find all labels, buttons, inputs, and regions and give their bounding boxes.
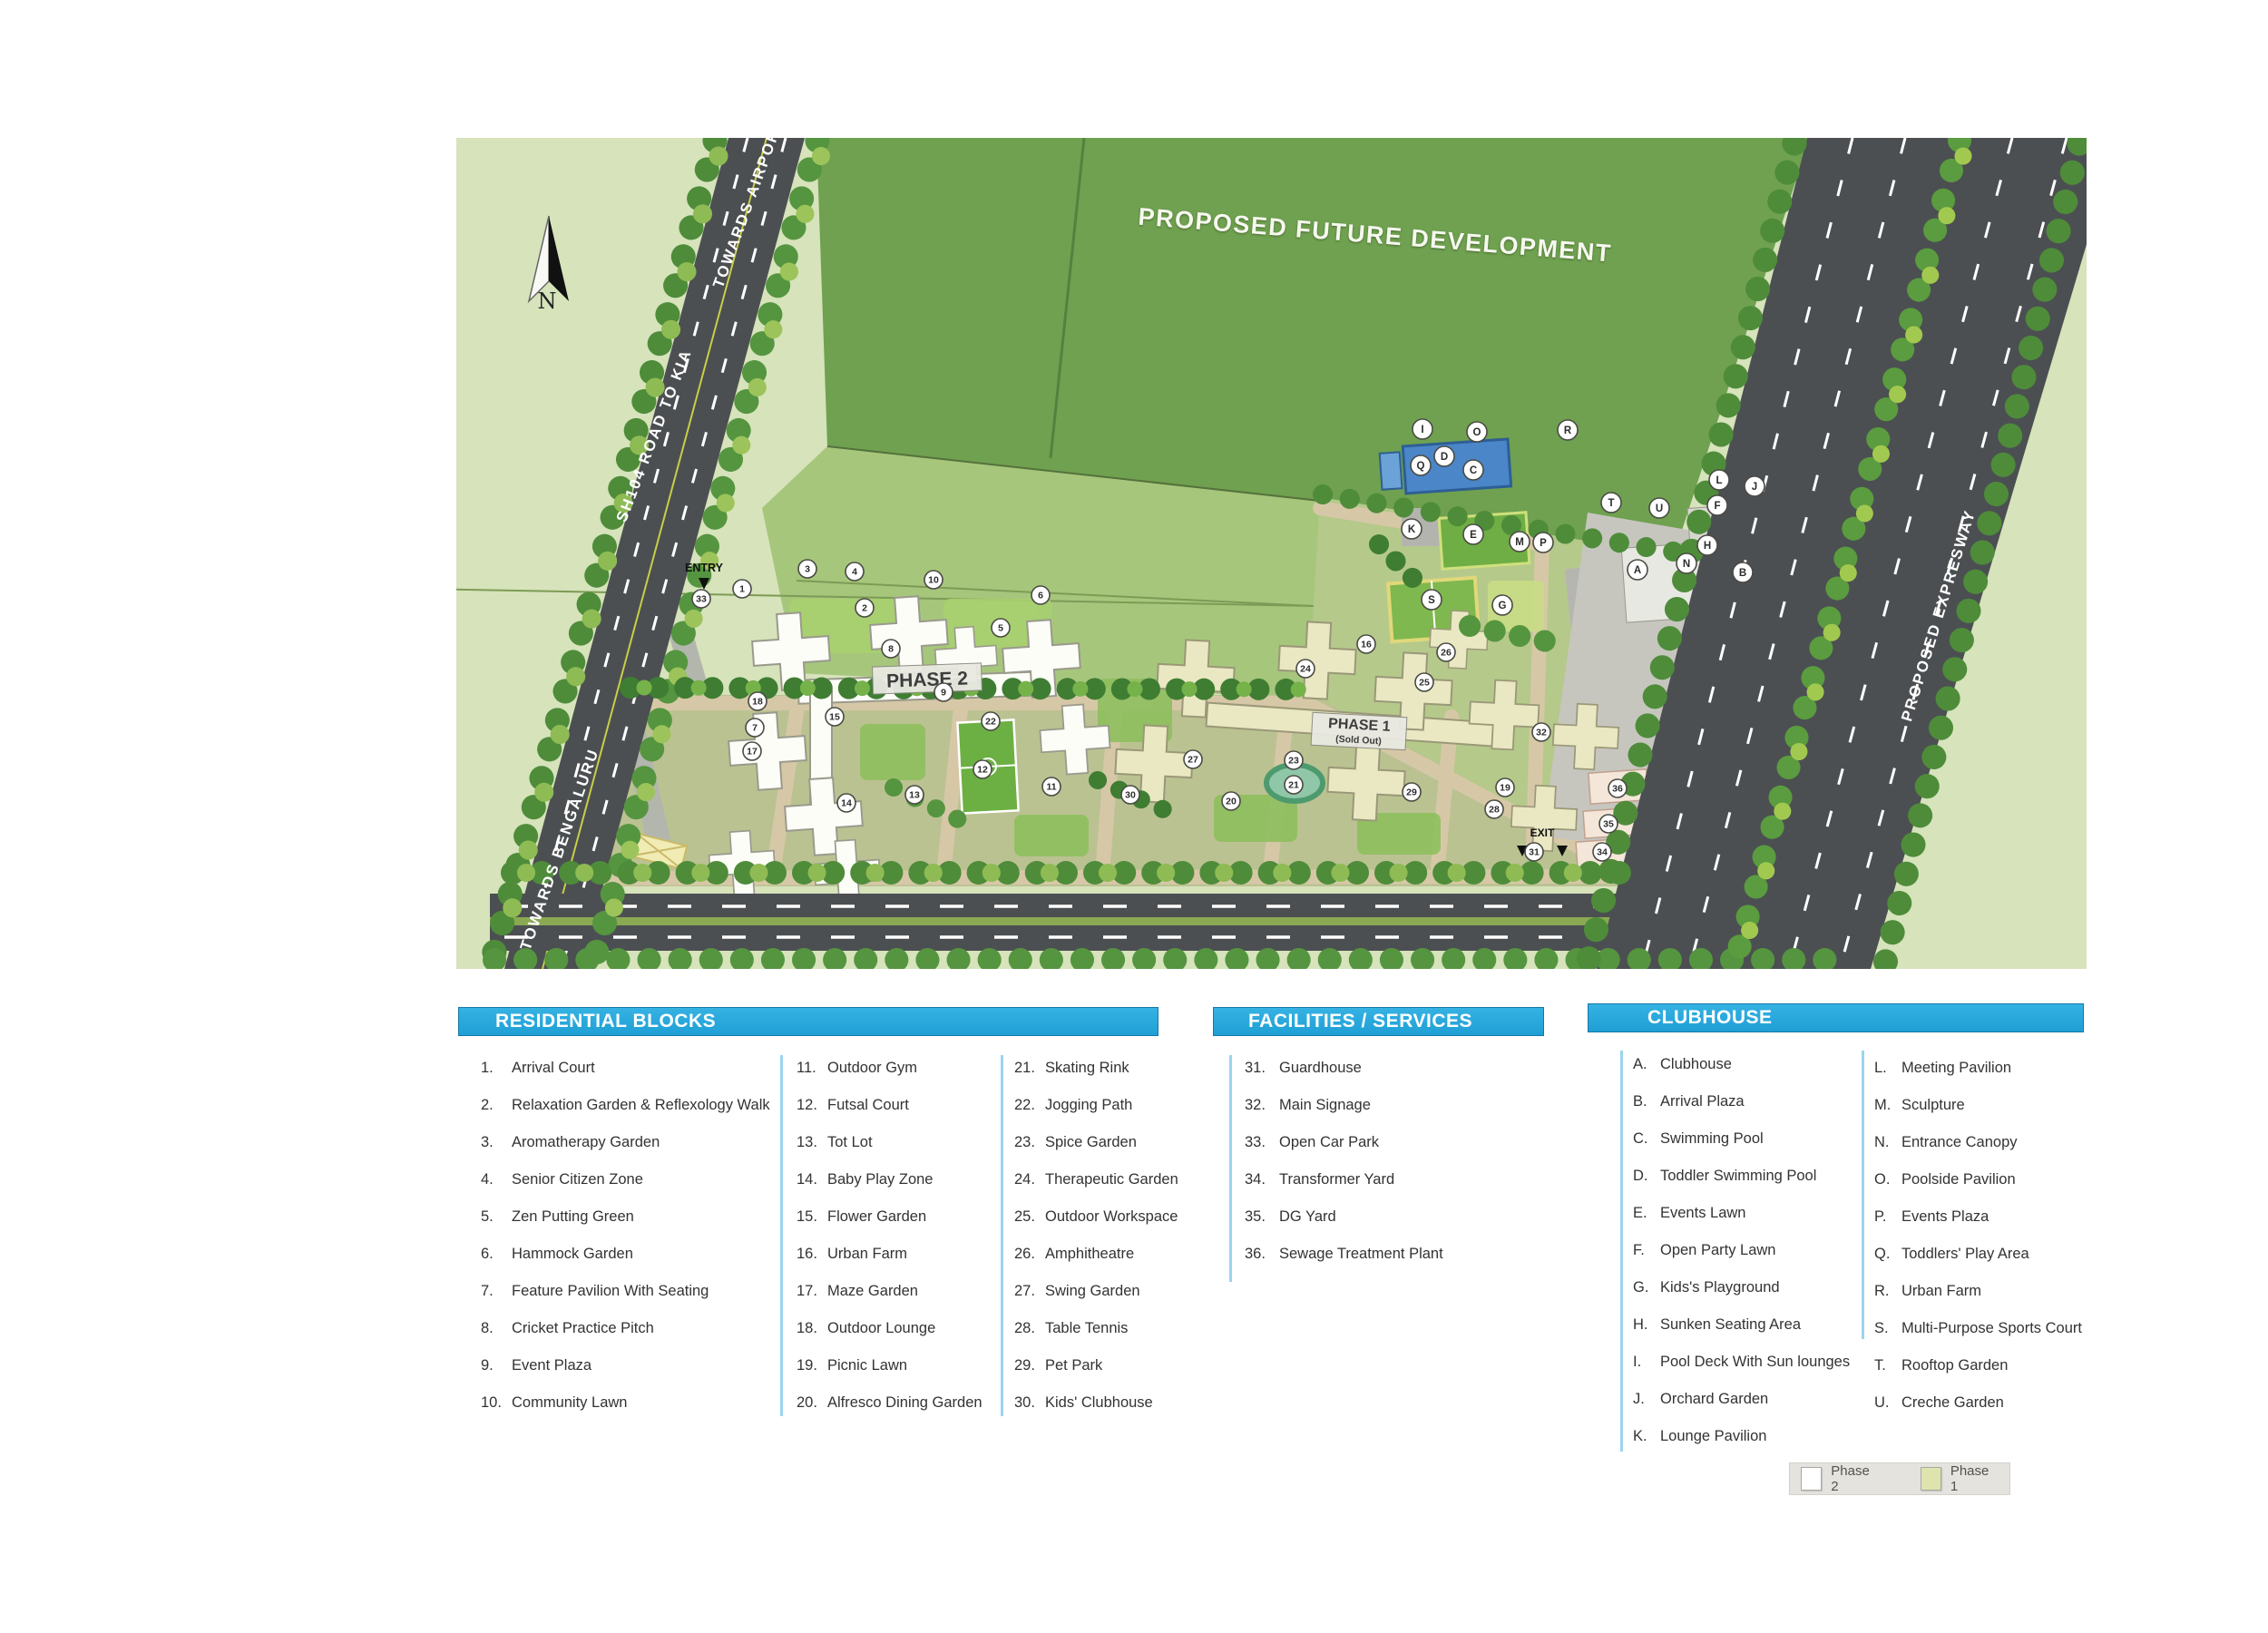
- phase1-plate: PHASE 1 (Sold Out): [1311, 712, 1407, 749]
- svg-text:7: 7: [752, 723, 758, 734]
- svg-text:29: 29: [1406, 787, 1417, 798]
- svg-text:23: 23: [1288, 756, 1299, 767]
- svg-text:C: C: [1470, 465, 1477, 476]
- legend-item: 23.Spice Garden: [1014, 1134, 1178, 1171]
- legend-item: 20.Alfresco Dining Garden: [797, 1394, 982, 1432]
- compass-n-label: N: [538, 288, 557, 314]
- phase2-swatch: [1801, 1467, 1822, 1491]
- svg-text:36: 36: [1612, 784, 1623, 795]
- legend-item: 16.Urban Farm: [797, 1246, 982, 1283]
- legend-item: S.Multi-Purpose Sports Court: [1874, 1320, 2082, 1357]
- phase1-key-label: Phase 1: [1950, 1463, 1999, 1494]
- legend-item: 32.Main Signage: [1245, 1097, 1443, 1134]
- legend-item: 18.Outdoor Lounge: [797, 1320, 982, 1357]
- legend-item: 33.Open Car Park: [1245, 1134, 1443, 1171]
- divider: [1862, 1051, 1864, 1339]
- svg-text:24: 24: [1300, 664, 1311, 675]
- svg-text:15: 15: [829, 712, 840, 723]
- legend-item: 1.Arrival Court: [481, 1060, 770, 1097]
- svg-text:S: S: [1428, 595, 1435, 606]
- svg-text:20: 20: [1226, 797, 1237, 807]
- svg-text:13: 13: [909, 790, 920, 801]
- legend-item: 6.Hammock Garden: [481, 1246, 770, 1283]
- svg-text:4: 4: [852, 567, 857, 578]
- divider: [1229, 1055, 1232, 1282]
- legend-item: 29.Pet Park: [1014, 1357, 1178, 1394]
- svg-text:35: 35: [1603, 819, 1614, 830]
- svg-text:M: M: [1515, 537, 1524, 548]
- residential-col-3: 21.Skating Rink22.Jogging Path23.Spice G…: [1014, 1060, 1178, 1432]
- svg-text:12: 12: [977, 765, 988, 776]
- svg-text:22: 22: [985, 717, 996, 728]
- residential-blocks-title: RESIDENTIAL BLOCKS: [495, 1011, 716, 1032]
- svg-text:14: 14: [841, 798, 852, 809]
- legend-item: E.Events Lawn: [1633, 1205, 1850, 1242]
- legend-item: 9.Event Plaza: [481, 1357, 770, 1394]
- clubhouse-col-1: A.ClubhouseB.Arrival PlazaC.Swimming Poo…: [1633, 1056, 1850, 1465]
- svg-text:11: 11: [1046, 782, 1056, 793]
- svg-text:17: 17: [747, 747, 758, 758]
- legend-item: M.Sculpture: [1874, 1097, 2082, 1134]
- legend-item: N.Entrance Canopy: [1874, 1134, 2082, 1171]
- legend-item: 7.Feature Pavilion With Seating: [481, 1283, 770, 1320]
- legend-item: 27.Swing Garden: [1014, 1283, 1178, 1320]
- svg-text:19: 19: [1500, 783, 1510, 794]
- svg-text:28: 28: [1489, 805, 1500, 816]
- svg-text:A: A: [1634, 565, 1641, 576]
- svg-text:R: R: [1564, 425, 1572, 436]
- legend-item: 28.Table Tennis: [1014, 1320, 1178, 1357]
- legend-item: 36.Sewage Treatment Plant: [1245, 1246, 1443, 1283]
- svg-text:U: U: [1656, 504, 1663, 514]
- svg-text:27: 27: [1188, 755, 1198, 766]
- legend-item: 2.Relaxation Garden & Reflexology Walk: [481, 1097, 770, 1134]
- svg-text:26: 26: [1441, 648, 1452, 659]
- svg-text:18: 18: [752, 697, 763, 708]
- svg-text:J: J: [1752, 482, 1757, 493]
- svg-text:10: 10: [928, 575, 939, 586]
- svg-text:1: 1: [739, 584, 745, 595]
- svg-text:9: 9: [941, 688, 946, 699]
- facilities-title: FACILITIES / SERVICES: [1248, 1011, 1472, 1032]
- legend-item: 21.Skating Rink: [1014, 1060, 1178, 1097]
- svg-text:K: K: [1408, 524, 1416, 535]
- legend-item: R.Urban Farm: [1874, 1283, 2082, 1320]
- svg-text:3: 3: [805, 564, 810, 575]
- svg-text:L: L: [1716, 475, 1722, 486]
- legend-item: 30.Kids' Clubhouse: [1014, 1394, 1178, 1432]
- svg-text:30: 30: [1125, 790, 1136, 801]
- legend-item: A.Clubhouse: [1633, 1056, 1850, 1093]
- legend-item: 17.Maze Garden: [797, 1283, 982, 1320]
- legend-item: 11.Outdoor Gym: [797, 1060, 982, 1097]
- svg-text:N: N: [1683, 559, 1690, 570]
- legend-item: 19.Picnic Lawn: [797, 1357, 982, 1394]
- clubhouse-col-2: L.Meeting PavilionM.SculptureN.Entrance …: [1874, 1060, 2082, 1432]
- residential-blocks-header: RESIDENTIAL BLOCKS: [458, 1007, 1158, 1036]
- legend-item: U.Creche Garden: [1874, 1394, 2082, 1432]
- svg-text:I: I: [1421, 425, 1423, 435]
- legend-item: P.Events Plaza: [1874, 1208, 2082, 1246]
- svg-text:H: H: [1704, 541, 1711, 552]
- legend-item: 31.Guardhouse: [1245, 1060, 1443, 1097]
- divider: [780, 1055, 783, 1416]
- legend-item: L.Meeting Pavilion: [1874, 1060, 2082, 1097]
- svg-text:5: 5: [998, 623, 1003, 634]
- svg-text:ENTRY: ENTRY: [685, 562, 724, 574]
- legend-item: 25.Outdoor Workspace: [1014, 1208, 1178, 1246]
- legend-item: G.Kids's Playground: [1633, 1279, 1850, 1316]
- legend-item: B.Arrival Plaza: [1633, 1093, 1850, 1130]
- residential-col-1: 1.Arrival Court2.Relaxation Garden & Ref…: [481, 1060, 770, 1432]
- svg-text:2: 2: [862, 603, 867, 614]
- svg-text:6: 6: [1038, 591, 1043, 601]
- facilities-header: FACILITIES / SERVICES: [1213, 1007, 1544, 1036]
- svg-text:T: T: [1608, 498, 1614, 509]
- legend-item: 12.Futsal Court: [797, 1097, 982, 1134]
- legend-item: 26.Amphitheatre: [1014, 1246, 1178, 1283]
- facilities-list: 31.Guardhouse32.Main Signage33.Open Car …: [1245, 1060, 1443, 1283]
- svg-text:32: 32: [1536, 728, 1547, 738]
- svg-text:PHASE 1: PHASE 1: [1328, 716, 1391, 735]
- legend-item: 35.DG Yard: [1245, 1208, 1443, 1246]
- legend-item: 13.Tot Lot: [797, 1134, 982, 1171]
- legend-item: I.Pool Deck With Sun lounges: [1633, 1354, 1850, 1391]
- legend-item: 4.Senior Citizen Zone: [481, 1171, 770, 1208]
- legend-item: K.Lounge Pavilion: [1633, 1428, 1850, 1465]
- legend-item: 5.Zen Putting Green: [481, 1208, 770, 1246]
- svg-text:EXIT: EXIT: [1530, 826, 1555, 839]
- svg-text:P: P: [1540, 538, 1547, 549]
- legend-item: O.Poolside Pavilion: [1874, 1171, 2082, 1208]
- legend-item: 24.Therapeutic Garden: [1014, 1171, 1178, 1208]
- phase2-plate: PHASE 2: [873, 663, 982, 694]
- clubhouse-title: CLUBHOUSE: [1647, 1007, 1773, 1029]
- svg-text:Q: Q: [1417, 461, 1425, 472]
- svg-text:34: 34: [1597, 847, 1608, 858]
- phase1-swatch: [1921, 1467, 1941, 1491]
- svg-text:21: 21: [1288, 780, 1299, 791]
- svg-text:8: 8: [888, 644, 894, 655]
- legend-item: 22.Jogging Path: [1014, 1097, 1178, 1134]
- legend-item: J.Orchard Garden: [1633, 1391, 1850, 1428]
- legend-item: F.Open Party Lawn: [1633, 1242, 1850, 1279]
- legend-item: H.Sunken Seating Area: [1633, 1316, 1850, 1354]
- legend-item: C.Swimming Pool: [1633, 1130, 1850, 1168]
- legend-item: 15.Flower Garden: [797, 1208, 982, 1246]
- legend-item: Q.Toddlers' Play Area: [1874, 1246, 2082, 1283]
- svg-text:E: E: [1470, 530, 1477, 541]
- svg-text:B: B: [1739, 568, 1746, 579]
- svg-text:G: G: [1499, 601, 1507, 611]
- svg-text:O: O: [1473, 427, 1481, 438]
- legend-item: 10.Community Lawn: [481, 1394, 770, 1432]
- legend-item: 8.Cricket Practice Pitch: [481, 1320, 770, 1357]
- legend-item: 34.Transformer Yard: [1245, 1171, 1443, 1208]
- site-plan-map: N PROPOSED FUTURE DEVELOPMENT PROPOSED E…: [456, 138, 2087, 969]
- legend-item: 14.Baby Play Zone: [797, 1171, 982, 1208]
- svg-text:33: 33: [696, 594, 707, 605]
- svg-text:PHASE 2: PHASE 2: [886, 668, 969, 691]
- svg-text:31: 31: [1529, 847, 1540, 858]
- divider: [1620, 1051, 1623, 1452]
- clubhouse-header: CLUBHOUSE: [1588, 1003, 2084, 1032]
- legend-item: T.Rooftop Garden: [1874, 1357, 2082, 1394]
- legend-item: 3.Aromatherapy Garden: [481, 1134, 770, 1171]
- svg-text:25: 25: [1419, 678, 1430, 689]
- svg-text:16: 16: [1361, 640, 1372, 650]
- phase2-key-label: Phase 2: [1831, 1463, 1879, 1494]
- svg-text:D: D: [1441, 452, 1448, 463]
- residential-col-2: 11.Outdoor Gym12.Futsal Court13.Tot Lot1…: [797, 1060, 982, 1432]
- divider: [1001, 1055, 1003, 1416]
- phase-key: Phase 2 Phase 1: [1789, 1462, 2010, 1495]
- legend-item: D.Toddler Swimming Pool: [1633, 1168, 1850, 1205]
- svg-text:F: F: [1714, 501, 1720, 512]
